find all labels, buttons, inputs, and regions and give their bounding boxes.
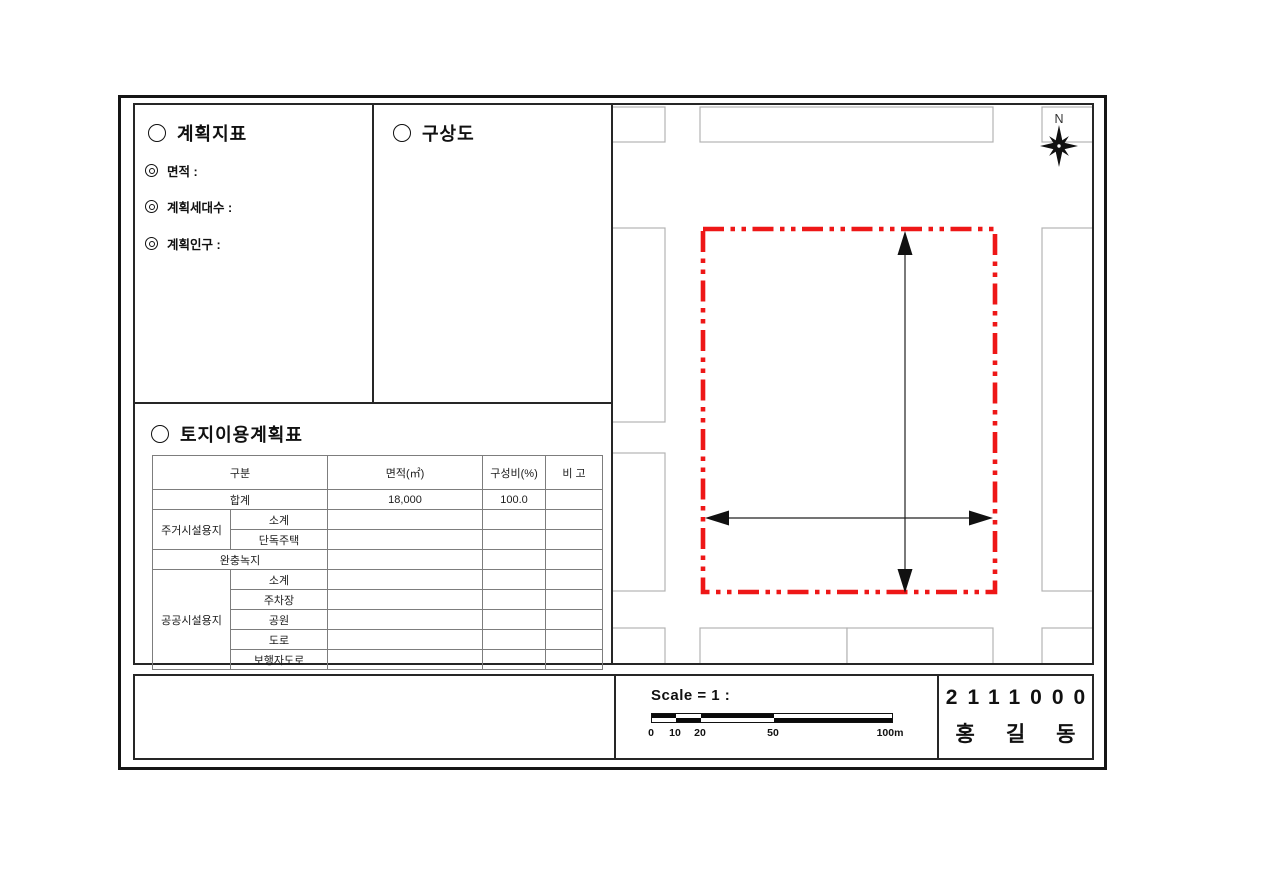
- circle-bullet-icon: [393, 124, 411, 142]
- cell-ratio: [483, 550, 546, 570]
- cell-note: [546, 570, 603, 590]
- road-block: [1042, 228, 1094, 591]
- cell-note: [546, 590, 603, 610]
- table-header-row: 구분 면적(㎡) 구성비(%) 비 고: [153, 456, 603, 490]
- cell-note: [546, 530, 603, 550]
- scale-tick: 50: [767, 727, 779, 739]
- concept-drawing-panel: 구상도: [372, 103, 613, 404]
- cell-area: [328, 610, 483, 630]
- table-row-buffer: 완충녹지: [153, 550, 603, 570]
- indicator-population: 계획인구 :: [145, 234, 221, 253]
- planning-indicators-panel: 계획지표 면적 : 계획세대수 : 계획인구 :: [133, 103, 374, 404]
- header-category: 구분: [153, 456, 328, 490]
- road-block: [613, 453, 665, 591]
- scale-tick: 20: [694, 727, 706, 739]
- row-label: 단독주택: [231, 530, 328, 550]
- scale-tick: 0: [648, 727, 654, 739]
- group-residential: 주거시설용지: [153, 510, 231, 550]
- table-row: 공공시설용지 소계: [153, 570, 603, 590]
- indicator-label: 계획인구 :: [167, 234, 221, 253]
- total-label: 합계: [153, 490, 328, 510]
- section-title-text: 구상도: [422, 120, 475, 146]
- group-public: 공공시설용지: [153, 570, 231, 670]
- road-block: [613, 228, 665, 422]
- road-block: [700, 628, 847, 665]
- road-block: [613, 628, 665, 665]
- land-use-table: 구분 면적(㎡) 구성비(%) 비 고 합계 18,000 100.0 주거시설…: [152, 455, 603, 670]
- header-ratio: 구성비(%): [483, 456, 546, 490]
- cell-area: [328, 510, 483, 530]
- road-block: [847, 628, 993, 665]
- concept-drawing-title: 구상도: [393, 120, 475, 146]
- cell-note: [546, 630, 603, 650]
- scale-bar: [651, 713, 893, 723]
- table-row-total: 합계 18,000 100.0: [153, 490, 603, 510]
- cell-ratio: [483, 590, 546, 610]
- cell-area: [328, 590, 483, 610]
- author-name: 홍길동: [939, 718, 1123, 748]
- scale-bar-segment: [701, 714, 774, 718]
- scale-tick: 10: [669, 727, 681, 739]
- cell-note: [546, 550, 603, 570]
- dimension-arrow-vertical: [898, 231, 913, 593]
- cell-note: [546, 650, 603, 670]
- road-block: [1042, 628, 1094, 665]
- cell-area: [328, 650, 483, 670]
- cell-ratio: [483, 510, 546, 530]
- scale-tick: 100m: [877, 727, 904, 739]
- indicator-label: 계획세대수 :: [167, 197, 232, 216]
- cell-ratio: [483, 570, 546, 590]
- cell-ratio: [483, 630, 546, 650]
- indicator-area: 면적 :: [145, 161, 198, 180]
- circle-bullet-icon: [148, 124, 166, 142]
- road-block: [613, 107, 665, 142]
- section-title-text: 계획지표: [177, 120, 247, 146]
- double-circle-bullet-icon: [145, 200, 158, 213]
- bottom-bar-empty-cell: [135, 676, 616, 758]
- road-block: [700, 107, 993, 142]
- site-map-panel: N: [611, 103, 1094, 665]
- row-label: 공원: [231, 610, 328, 630]
- cell-note: [546, 610, 603, 630]
- land-use-title: 토지이용계획표: [151, 421, 303, 447]
- road-blocks: [613, 107, 1094, 665]
- total-ratio: 100.0: [483, 490, 546, 510]
- row-label: 보행자도로: [231, 650, 328, 670]
- row-label: 소계: [231, 570, 328, 590]
- double-circle-bullet-icon: [145, 164, 158, 177]
- land-use-plan-panel: 토지이용계획표 구분 면적(㎡) 구성비(%) 비 고 합계 18,000 10…: [133, 402, 613, 665]
- site-boundary: [703, 229, 995, 592]
- total-note: [546, 490, 603, 510]
- cell-area: [328, 530, 483, 550]
- bottom-bar: Scale = 1 : 0 10 20 50 100m 2111000 홍길동: [133, 674, 1094, 760]
- cell-area: [328, 630, 483, 650]
- header-area: 면적(㎡): [328, 456, 483, 490]
- cell-ratio: [483, 530, 546, 550]
- planning-indicators-title: 계획지표: [148, 120, 247, 146]
- scale-bar-segment: [676, 718, 701, 722]
- cell-ratio: [483, 650, 546, 670]
- double-circle-bullet-icon: [145, 237, 158, 250]
- table-row: 주거시설용지 소계: [153, 510, 603, 530]
- north-label: N: [1054, 112, 1063, 126]
- indicator-label: 면적 :: [167, 161, 198, 180]
- drawing-code: 2111000: [939, 686, 1102, 710]
- cell-ratio: [483, 610, 546, 630]
- title-block-cell: 2111000 홍길동: [939, 676, 1092, 758]
- row-label: 소계: [231, 510, 328, 530]
- scale-bar-segment: [652, 714, 676, 718]
- scale-label: Scale = 1 :: [651, 687, 730, 704]
- row-label: 완충녹지: [153, 550, 328, 570]
- cell-area: [328, 570, 483, 590]
- section-title-text: 토지이용계획표: [180, 421, 303, 447]
- dimension-arrow-horizontal: [705, 511, 993, 526]
- row-label: 도로: [231, 630, 328, 650]
- scale-bar-segment: [774, 718, 892, 722]
- cell-area: [328, 550, 483, 570]
- cell-note: [546, 510, 603, 530]
- row-label: 주차장: [231, 590, 328, 610]
- site-map: N: [613, 105, 1094, 665]
- total-area: 18,000: [328, 490, 483, 510]
- scale-cell: Scale = 1 : 0 10 20 50 100m: [616, 676, 939, 758]
- indicator-households: 계획세대수 :: [145, 197, 232, 216]
- circle-bullet-icon: [151, 425, 169, 443]
- header-note: 비 고: [546, 456, 603, 490]
